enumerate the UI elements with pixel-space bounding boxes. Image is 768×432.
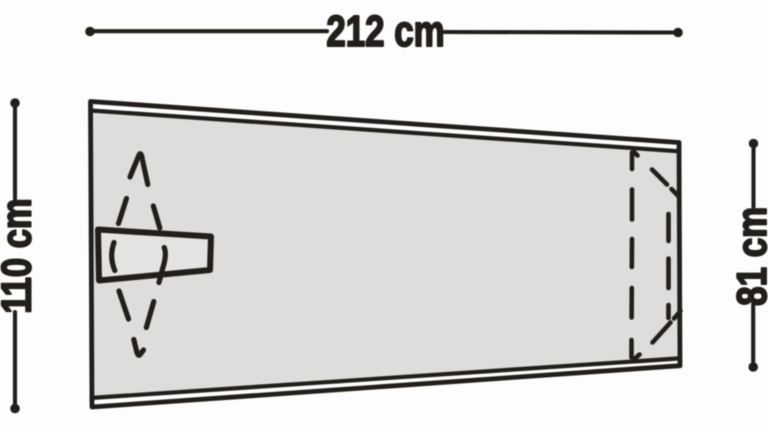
svg-text:110 cm: 110 cm: [0, 198, 40, 313]
svg-text:212 cm: 212 cm: [326, 8, 444, 57]
svg-text:81 cm: 81 cm: [729, 207, 768, 306]
